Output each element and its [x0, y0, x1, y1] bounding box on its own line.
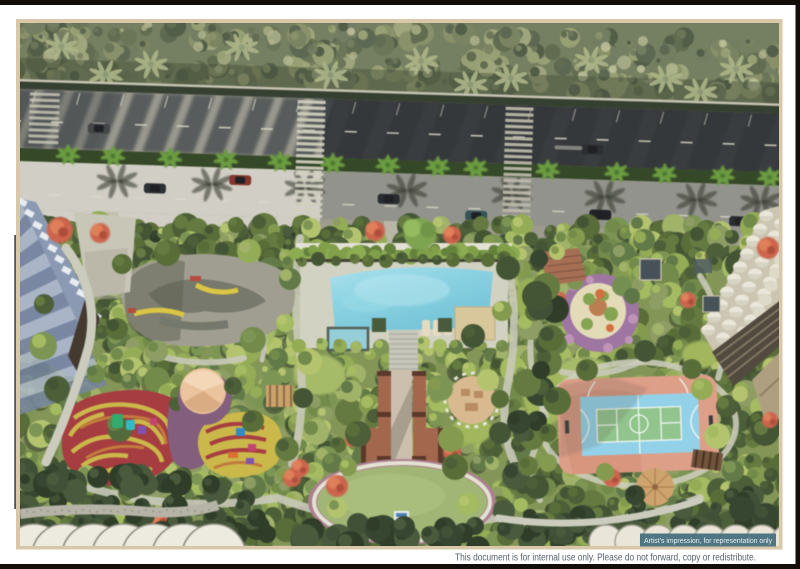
svg-text:Artist's impression, for repre: Artist's impression, for representation …	[644, 538, 773, 545]
svg-text:This document is for internal: This document is for internal use only. …	[455, 553, 756, 564]
